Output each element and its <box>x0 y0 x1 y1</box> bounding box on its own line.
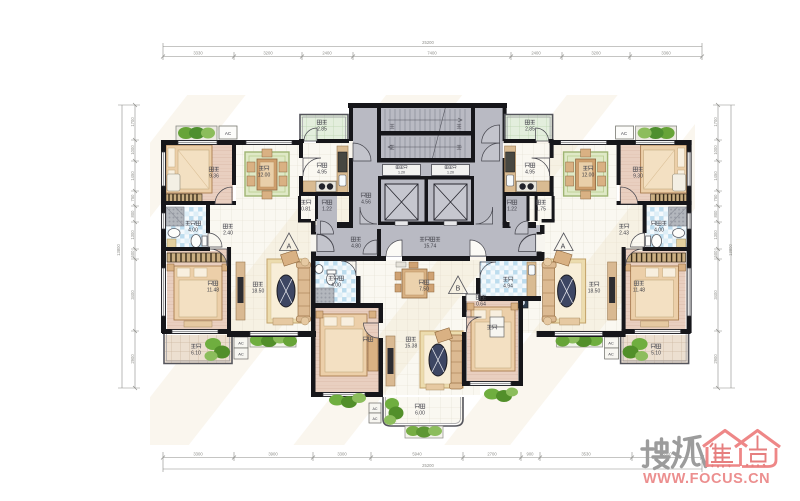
svg-text:AC: AC <box>238 341 244 346</box>
svg-text:A: A <box>287 244 292 251</box>
svg-text:2.85: 2.85 <box>525 127 535 133</box>
svg-text:4.95: 4.95 <box>525 170 535 176</box>
svg-text:3200: 3200 <box>263 51 273 56</box>
svg-text:A: A <box>561 244 566 251</box>
svg-text:3530: 3530 <box>581 452 591 457</box>
svg-text:11.48: 11.48 <box>207 288 219 294</box>
svg-text:1450: 1450 <box>130 171 135 181</box>
svg-text:25200: 25200 <box>422 40 434 45</box>
svg-text:4.80: 4.80 <box>351 244 361 250</box>
svg-text:3300: 3300 <box>337 452 347 457</box>
svg-text:1.20: 1.20 <box>398 171 405 175</box>
svg-text:1450: 1450 <box>713 171 718 181</box>
svg-text:6.10: 6.10 <box>191 351 201 357</box>
svg-text:4.00: 4.00 <box>188 228 198 234</box>
svg-text:750: 750 <box>713 194 718 202</box>
svg-text:13800: 13800 <box>116 244 121 256</box>
svg-text:13800: 13800 <box>728 244 733 256</box>
svg-text:B: B <box>456 286 461 293</box>
svg-text:3330: 3330 <box>193 51 203 56</box>
svg-text:2.43: 2.43 <box>619 231 629 237</box>
svg-text:800: 800 <box>130 210 135 218</box>
svg-text:1.20: 1.20 <box>447 171 454 175</box>
svg-text:3400: 3400 <box>713 290 718 300</box>
svg-text:AC: AC <box>373 417 378 421</box>
svg-text:9.36: 9.36 <box>209 174 219 180</box>
svg-text:1.75: 1.75 <box>536 207 546 213</box>
svg-text:6.00: 6.00 <box>415 411 425 417</box>
svg-text:15.38: 15.38 <box>405 344 418 350</box>
svg-text:9.30: 9.30 <box>633 174 643 180</box>
svg-text:2900: 2900 <box>713 354 718 364</box>
svg-text:25200: 25200 <box>422 463 434 468</box>
svg-text:0.81: 0.81 <box>301 207 311 213</box>
svg-text:4.94: 4.94 <box>503 284 513 290</box>
svg-text:2700: 2700 <box>487 452 497 457</box>
svg-text:1000: 1000 <box>130 145 135 155</box>
svg-text:3300: 3300 <box>193 452 203 457</box>
svg-text:1300: 1300 <box>130 230 135 240</box>
svg-text:1700: 1700 <box>713 117 718 127</box>
svg-text:4.56: 4.56 <box>361 200 371 206</box>
svg-text:1.22: 1.22 <box>507 207 517 213</box>
svg-text:500: 500 <box>713 250 718 258</box>
svg-text:AC: AC <box>621 131 628 136</box>
svg-text:800: 800 <box>713 210 718 218</box>
svg-text:WWW.FOCUS.CN: WWW.FOCUS.CN <box>643 471 770 487</box>
svg-text:750: 750 <box>130 194 135 202</box>
svg-text:900: 900 <box>527 452 535 457</box>
svg-text:3900: 3900 <box>268 452 278 457</box>
svg-text:4.00: 4.00 <box>654 228 664 234</box>
svg-text:2.85: 2.85 <box>317 127 327 133</box>
svg-text:1300: 1300 <box>713 230 718 240</box>
svg-text:AC: AC <box>225 131 232 136</box>
svg-text:2400: 2400 <box>322 51 332 56</box>
svg-text:15.74: 15.74 <box>424 244 437 250</box>
svg-text:3200: 3200 <box>591 51 601 56</box>
svg-text:AC: AC <box>608 352 614 357</box>
svg-text:AC: AC <box>373 407 378 411</box>
svg-text:4.95: 4.95 <box>317 170 327 176</box>
svg-text:AC: AC <box>238 352 244 357</box>
svg-text:3400: 3400 <box>130 290 135 300</box>
svg-text:3360: 3360 <box>661 51 671 56</box>
svg-text:2400: 2400 <box>531 51 541 56</box>
svg-text:11.48: 11.48 <box>633 288 645 294</box>
svg-text:7400: 7400 <box>427 51 437 56</box>
svg-text:12.00: 12.00 <box>582 173 595 179</box>
svg-text:18.50: 18.50 <box>588 289 601 295</box>
svg-text:5940: 5940 <box>412 452 422 457</box>
svg-text:4.00: 4.00 <box>331 283 341 289</box>
svg-text:AC: AC <box>608 341 614 346</box>
svg-text:18.50: 18.50 <box>252 289 265 295</box>
svg-text:500: 500 <box>130 250 135 258</box>
svg-text:1700: 1700 <box>130 117 135 127</box>
svg-text:1.22: 1.22 <box>322 207 332 213</box>
svg-text:1000: 1000 <box>713 145 718 155</box>
svg-text:2.40: 2.40 <box>223 231 233 237</box>
svg-text:12.00: 12.00 <box>258 173 271 179</box>
svg-text:7.50: 7.50 <box>419 287 429 293</box>
svg-text:0.64: 0.64 <box>476 302 486 308</box>
svg-text:2900: 2900 <box>130 354 135 364</box>
svg-text:5.10: 5.10 <box>651 351 661 357</box>
